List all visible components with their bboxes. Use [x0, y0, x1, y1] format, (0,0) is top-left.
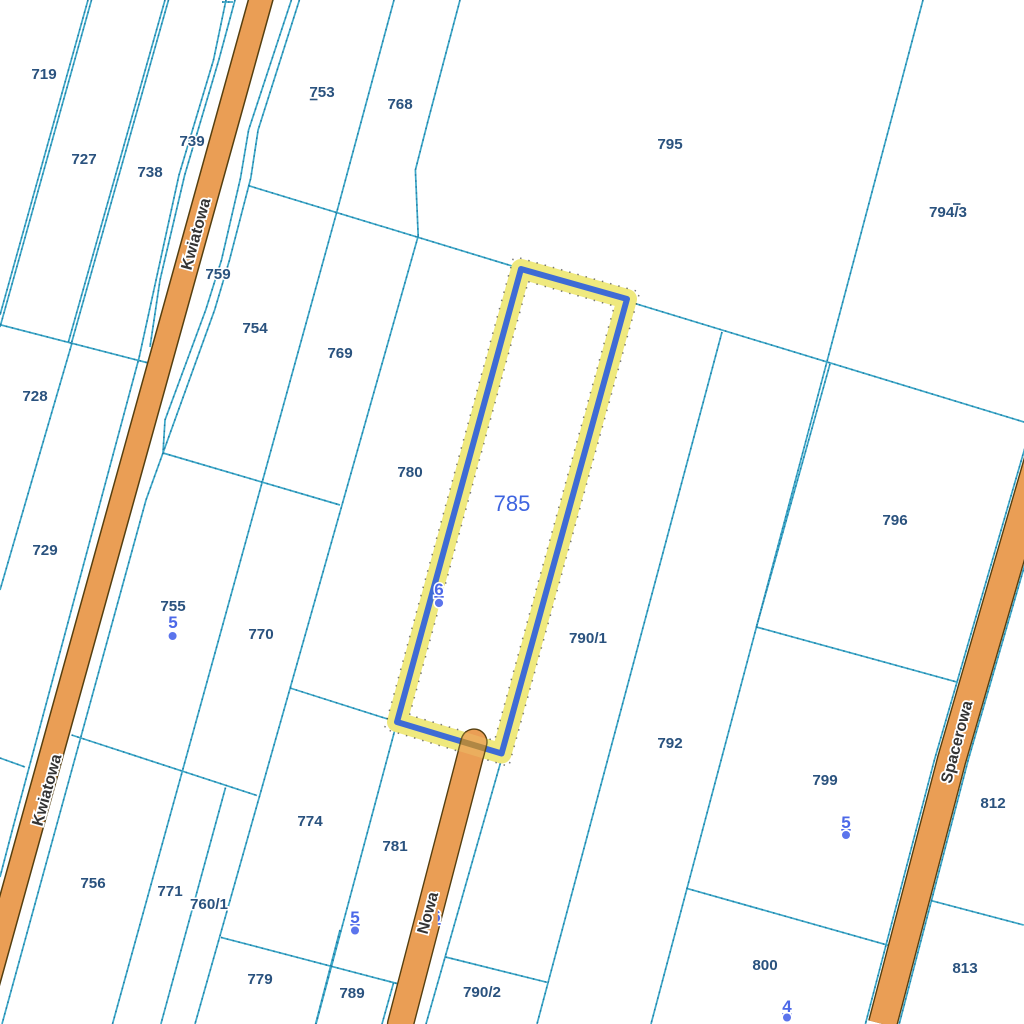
svg-text:768: 768	[387, 96, 412, 113]
svg-text:769: 769	[327, 345, 352, 362]
svg-text:753: 753	[309, 84, 334, 101]
svg-text:770: 770	[248, 626, 273, 643]
svg-text:796: 796	[882, 512, 907, 529]
svg-text:5: 5	[841, 813, 850, 832]
svg-text:760/1: 760/1	[190, 896, 229, 913]
svg-text:729: 729	[32, 542, 57, 559]
svg-text:779: 779	[247, 971, 272, 988]
svg-text:728: 728	[22, 388, 47, 405]
svg-text:790/2: 790/2	[463, 984, 501, 1001]
svg-text:792: 792	[657, 735, 682, 752]
svg-text:795: 795	[657, 136, 683, 153]
svg-text:756: 756	[80, 875, 105, 892]
svg-text:5: 5	[168, 613, 177, 632]
svg-text:781: 781	[382, 838, 408, 855]
svg-text:812: 812	[980, 795, 1005, 812]
svg-text:813: 813	[952, 960, 977, 977]
svg-text:759: 759	[205, 266, 230, 283]
svg-text:789: 789	[339, 985, 364, 1002]
svg-text:794/3: 794/3	[929, 204, 967, 221]
svg-text:771: 771	[157, 883, 183, 900]
svg-text:790/1: 790/1	[569, 630, 608, 647]
svg-text:5: 5	[350, 908, 359, 927]
svg-text:754: 754	[242, 320, 268, 337]
svg-text:800: 800	[752, 957, 777, 974]
svg-text:719: 719	[31, 66, 56, 83]
svg-text:727: 727	[71, 151, 96, 168]
svg-text:738: 738	[137, 164, 162, 181]
svg-text:6: 6	[434, 580, 443, 599]
svg-text:774: 774	[297, 813, 323, 830]
svg-text:739: 739	[179, 133, 204, 150]
svg-text:799: 799	[812, 772, 837, 789]
svg-text:785: 785	[494, 491, 531, 516]
svg-text:780: 780	[397, 464, 422, 481]
